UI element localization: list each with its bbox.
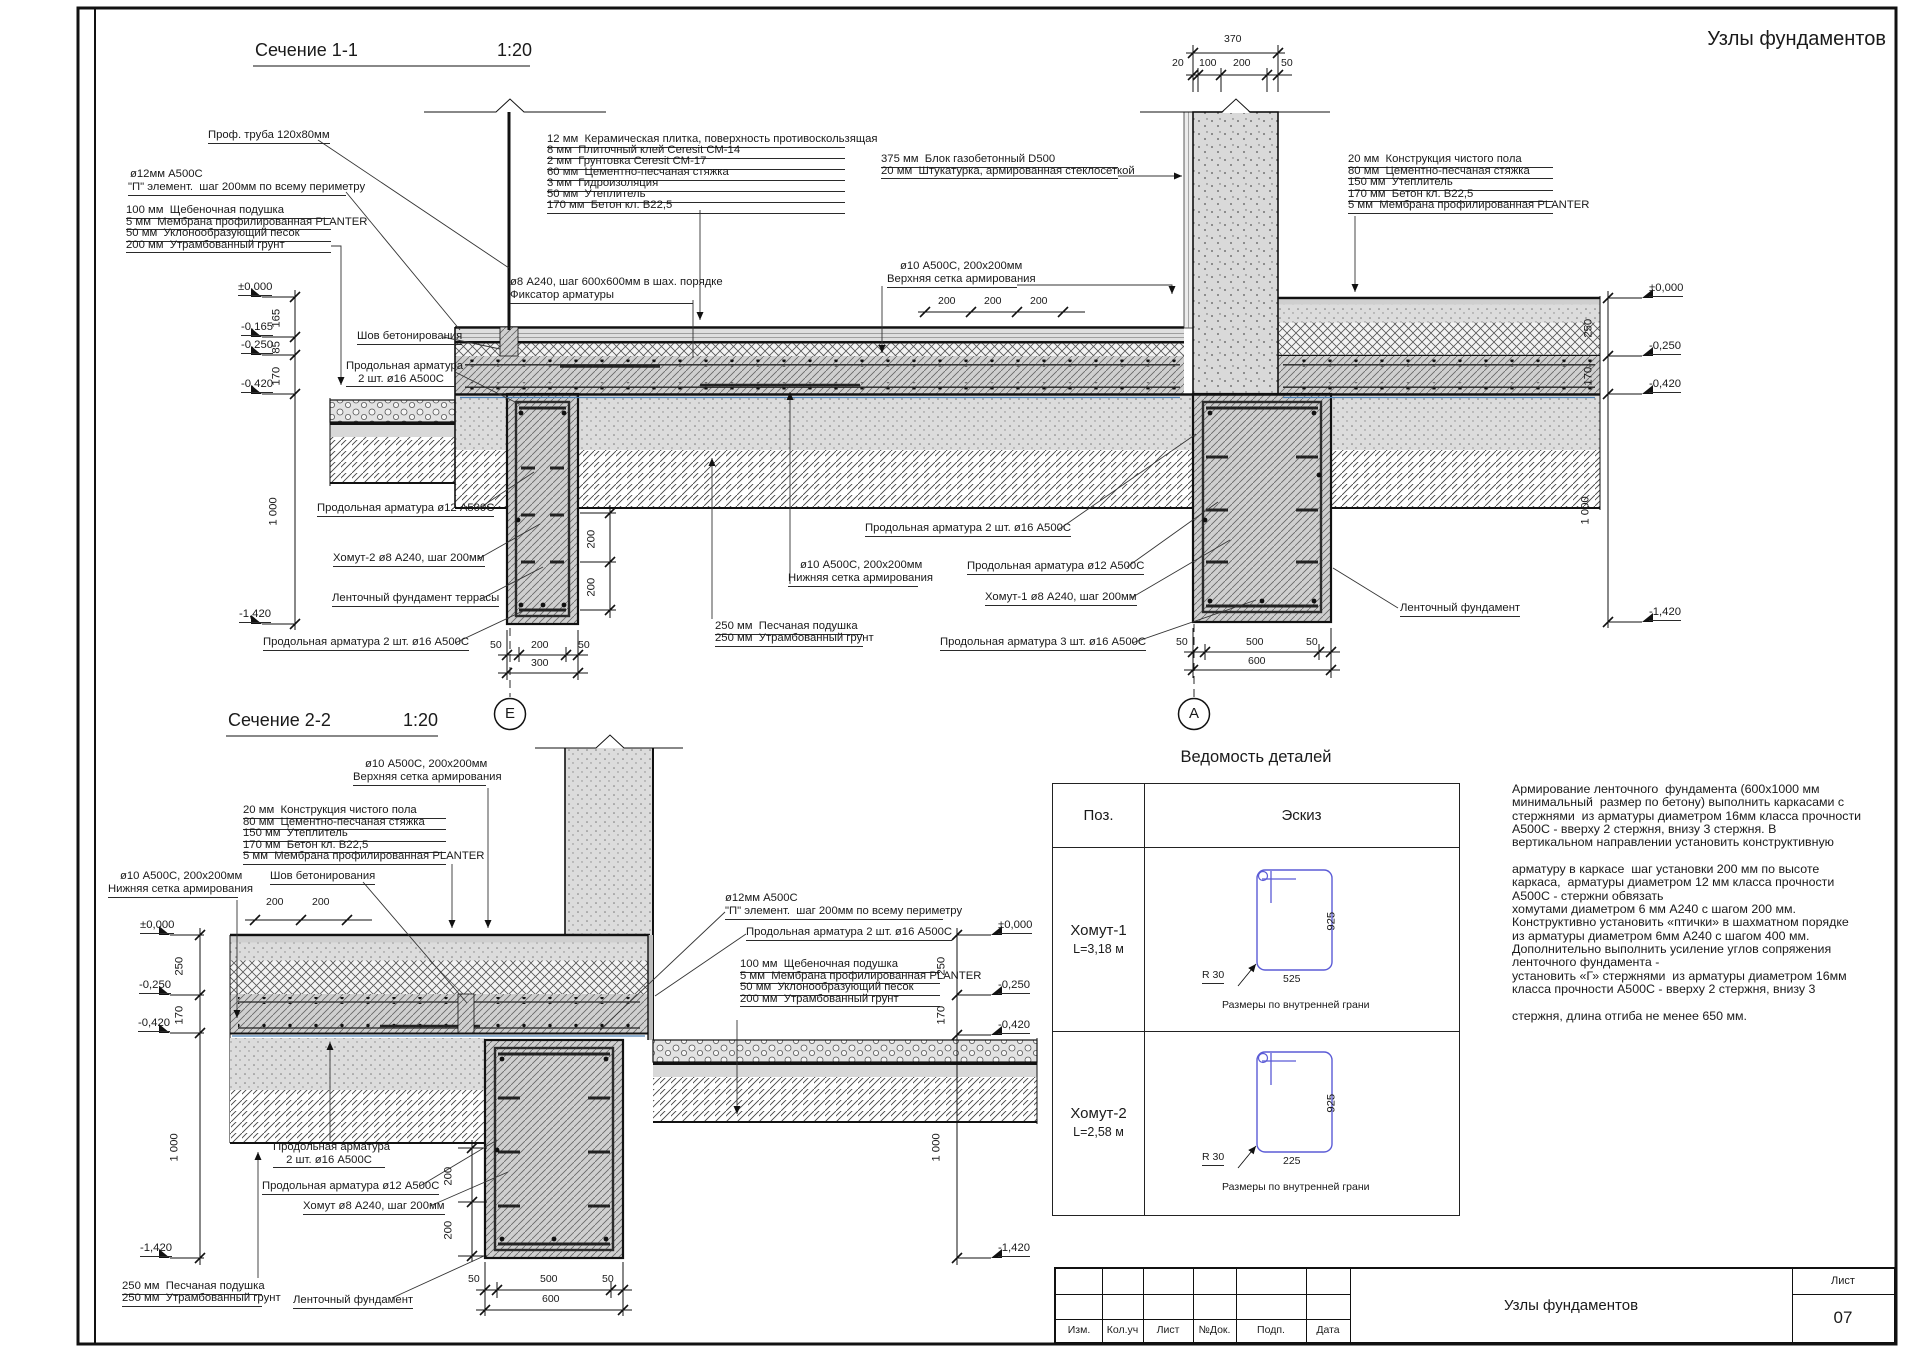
details-header-sketch: Эскиз	[1144, 784, 1459, 847]
tb-col-list: Лист	[1143, 1319, 1193, 1341]
details-row-2: Хомут-2 L=2,58 м	[1053, 1031, 1144, 1213]
tb-col-koluch: Кол.уч	[1102, 1319, 1143, 1341]
details-row-1: Хомут-1 L=3,18 м	[1053, 847, 1144, 1031]
tb-col-izm: Изм.	[1056, 1319, 1102, 1341]
detail-name: Хомут-2	[1070, 1105, 1126, 1122]
details-sketch-labels: 925525R 30Размеры по внутренней грани925…	[0, 0, 1920, 1357]
detail-name: Хомут-1	[1070, 922, 1126, 939]
table-divider	[1144, 784, 1145, 1215]
drawing-sheet: Сечение 1-11:20Проф. труба 120х80ммø12мм…	[0, 0, 1920, 1357]
tb-col-ndok: №Док.	[1193, 1319, 1236, 1341]
detail-length: L=2,58 м	[1073, 1125, 1124, 1139]
details-header-pos: Поз.	[1053, 784, 1144, 847]
tb-divider	[1056, 1294, 1350, 1295]
reinforcement-notes: Армирование ленточного фундамента (600х1…	[1512, 783, 1904, 1023]
tb-col-podp: Подп.	[1236, 1319, 1306, 1341]
sheet-corner-title: Узлы фундаментов	[1707, 28, 1886, 51]
detail-length: L=3,18 м	[1073, 942, 1124, 956]
details-table-title: Ведомость деталей	[1052, 748, 1460, 767]
details-table: Поз. Эскиз Хомут-1 L=3,18 м Хомут-2 L=2,…	[1052, 783, 1460, 1216]
tb-col-data: Дата	[1306, 1319, 1350, 1341]
tb-doc-title: Узлы фундаментов	[1350, 1269, 1792, 1341]
title-block: Изм. Кол.уч Лист №Док. Подп. Дата Узлы ф…	[1054, 1267, 1896, 1344]
tb-sheet-label: Лист	[1792, 1269, 1894, 1292]
tb-sheet-number: 07	[1792, 1294, 1894, 1341]
